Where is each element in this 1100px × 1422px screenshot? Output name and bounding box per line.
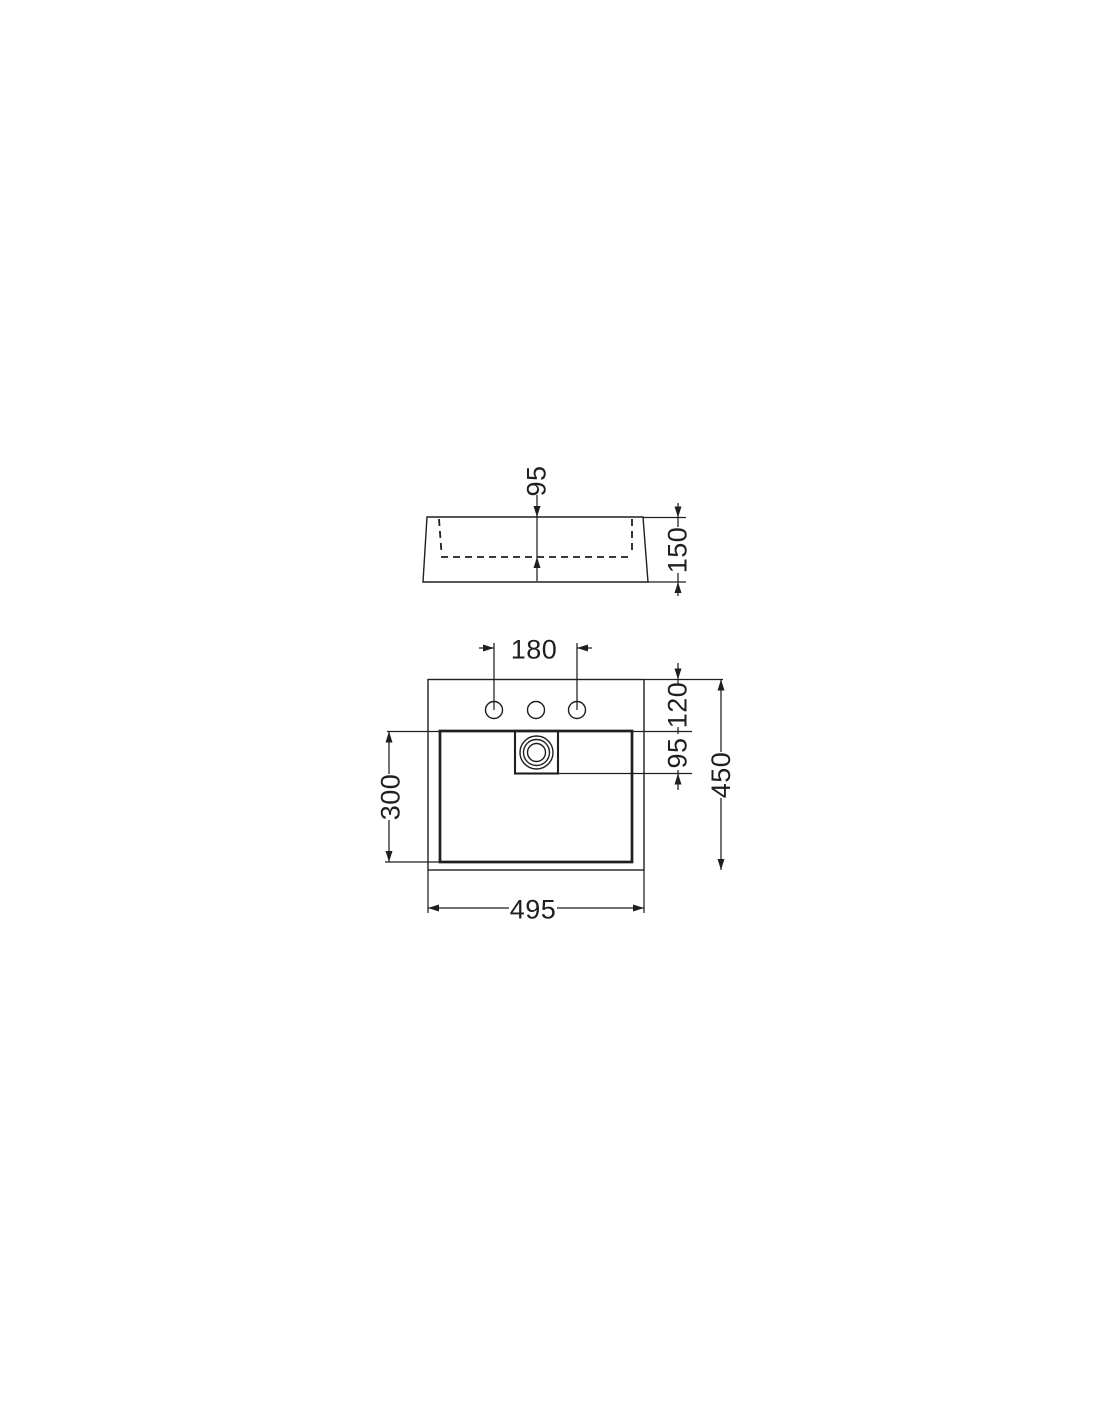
side-view-outline	[423, 517, 648, 582]
side-elevation-view: 95 150	[423, 465, 692, 596]
dim-label-300: 300	[375, 774, 405, 821]
plan-outer-rim	[428, 680, 644, 871]
drain-circle-outer	[520, 736, 553, 769]
dim-overall-depth: 450	[706, 680, 736, 871]
tap-hole-center	[528, 702, 545, 719]
basin-inner-rim	[440, 731, 632, 862]
dim-basin-length: 300	[375, 732, 440, 863]
dim-label-side-95: 95	[521, 465, 551, 496]
dim-label-180: 180	[511, 634, 558, 664]
drain-recess-square	[515, 731, 558, 774]
dim-rim-and-drain-chain: 120 95	[558, 663, 723, 790]
basin-interior-hidden-lines	[439, 519, 632, 557]
dim-basin-inner-depth: 95	[521, 465, 551, 581]
dim-label-plan-95: 95	[662, 737, 692, 768]
sink-dimension-drawing: 95 150	[0, 0, 1100, 1422]
dim-label-side-150: 150	[662, 527, 692, 574]
dim-label-450: 450	[706, 752, 736, 799]
dim-label-120: 120	[662, 682, 692, 729]
plan-view: 180 120 95 450	[375, 634, 736, 924]
tap-holes	[486, 702, 586, 719]
technical-drawing-canvas: 95 150	[0, 0, 1100, 1422]
dim-overall-height: 150	[643, 503, 692, 596]
dim-tap-hole-spacing: 180	[479, 634, 592, 710]
dim-overall-width: 495	[428, 870, 644, 924]
drain-assembly	[515, 731, 558, 774]
dim-label-495: 495	[510, 894, 557, 924]
drain-circle-inner	[528, 744, 546, 762]
